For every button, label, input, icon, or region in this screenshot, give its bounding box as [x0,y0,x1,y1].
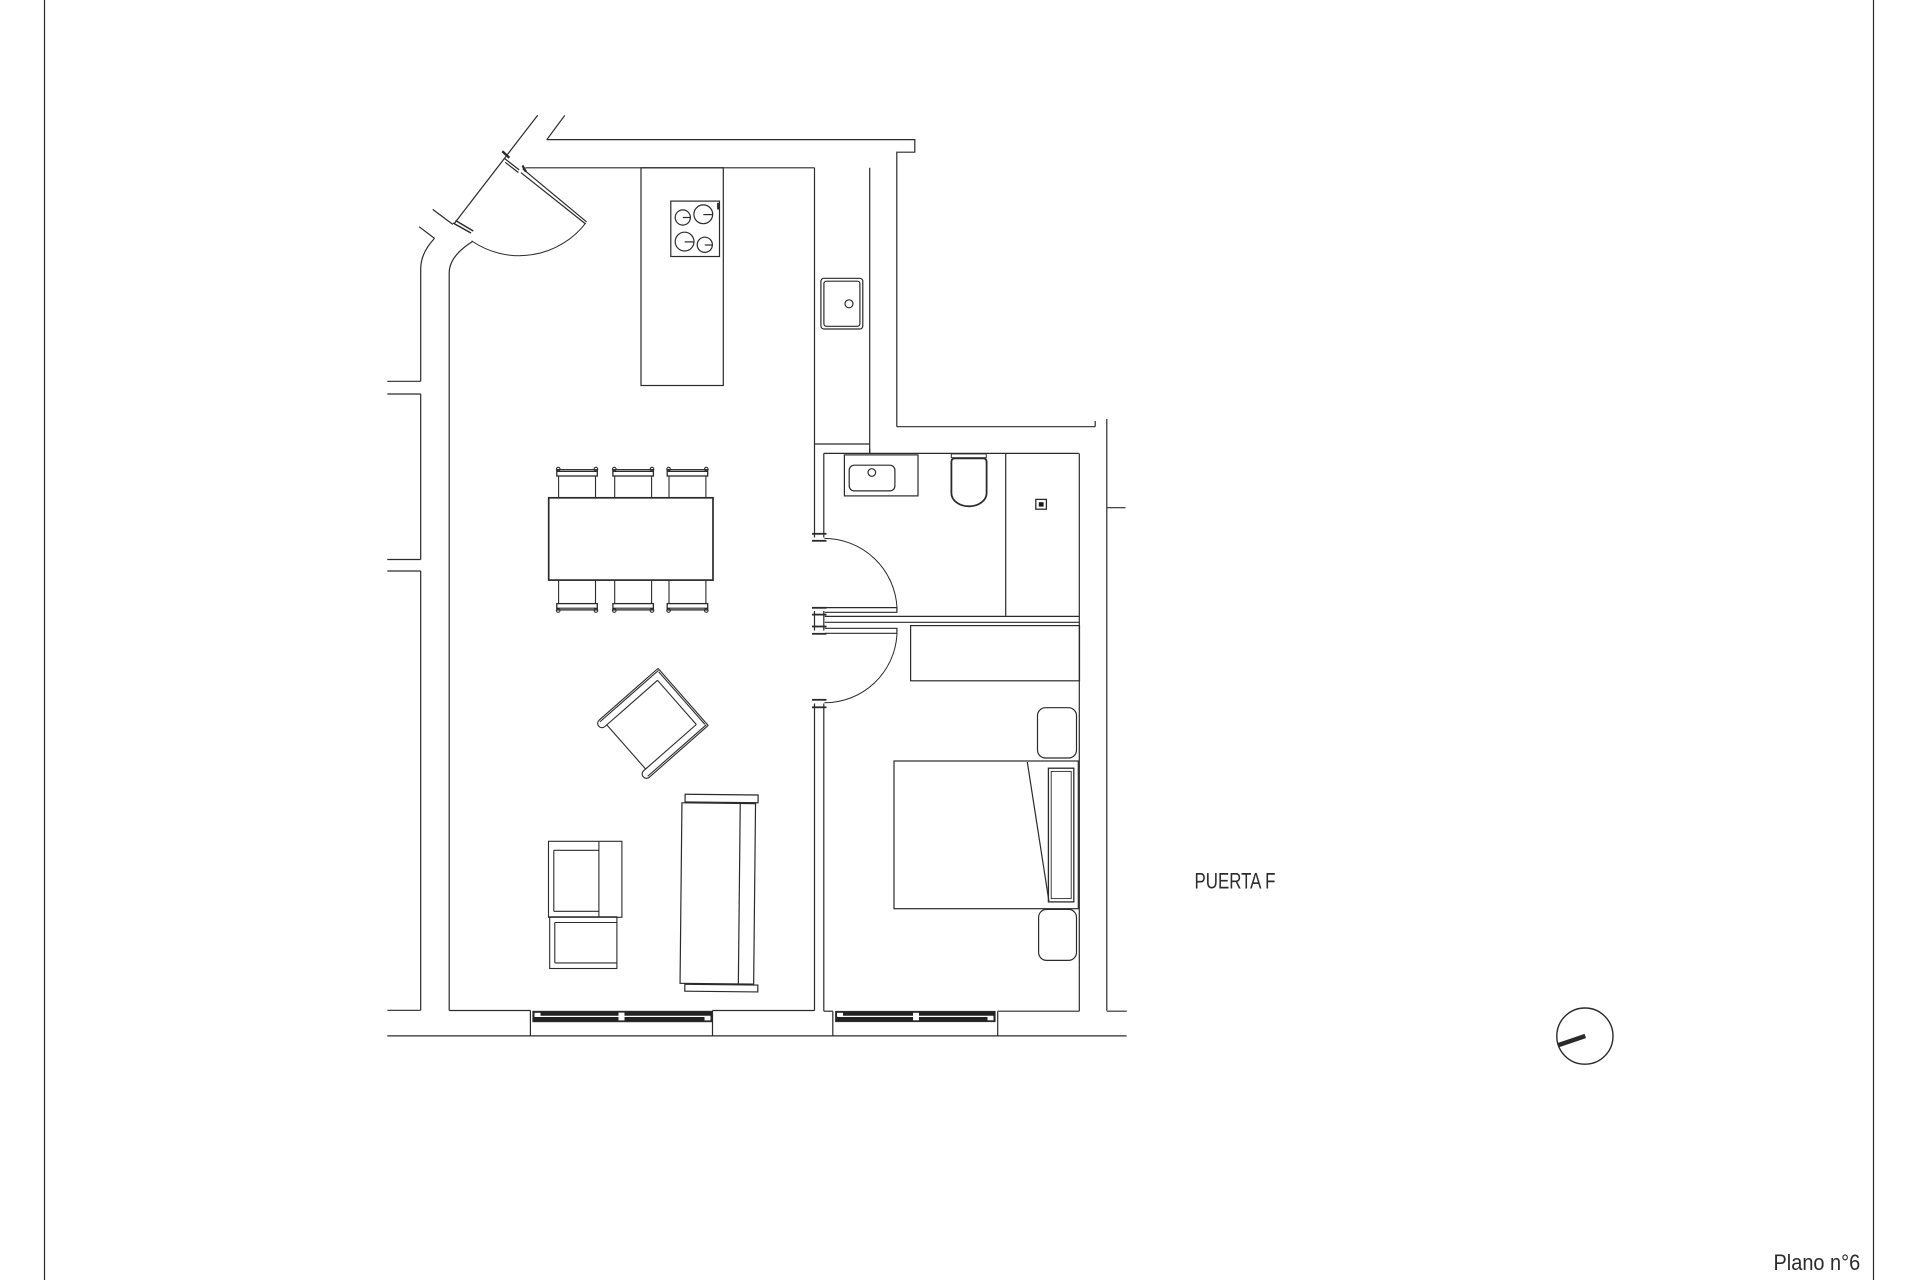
svg-text:Plano n°6: Plano n°6 [1774,1250,1861,1275]
svg-text:PUERTA F: PUERTA F [1195,869,1276,894]
